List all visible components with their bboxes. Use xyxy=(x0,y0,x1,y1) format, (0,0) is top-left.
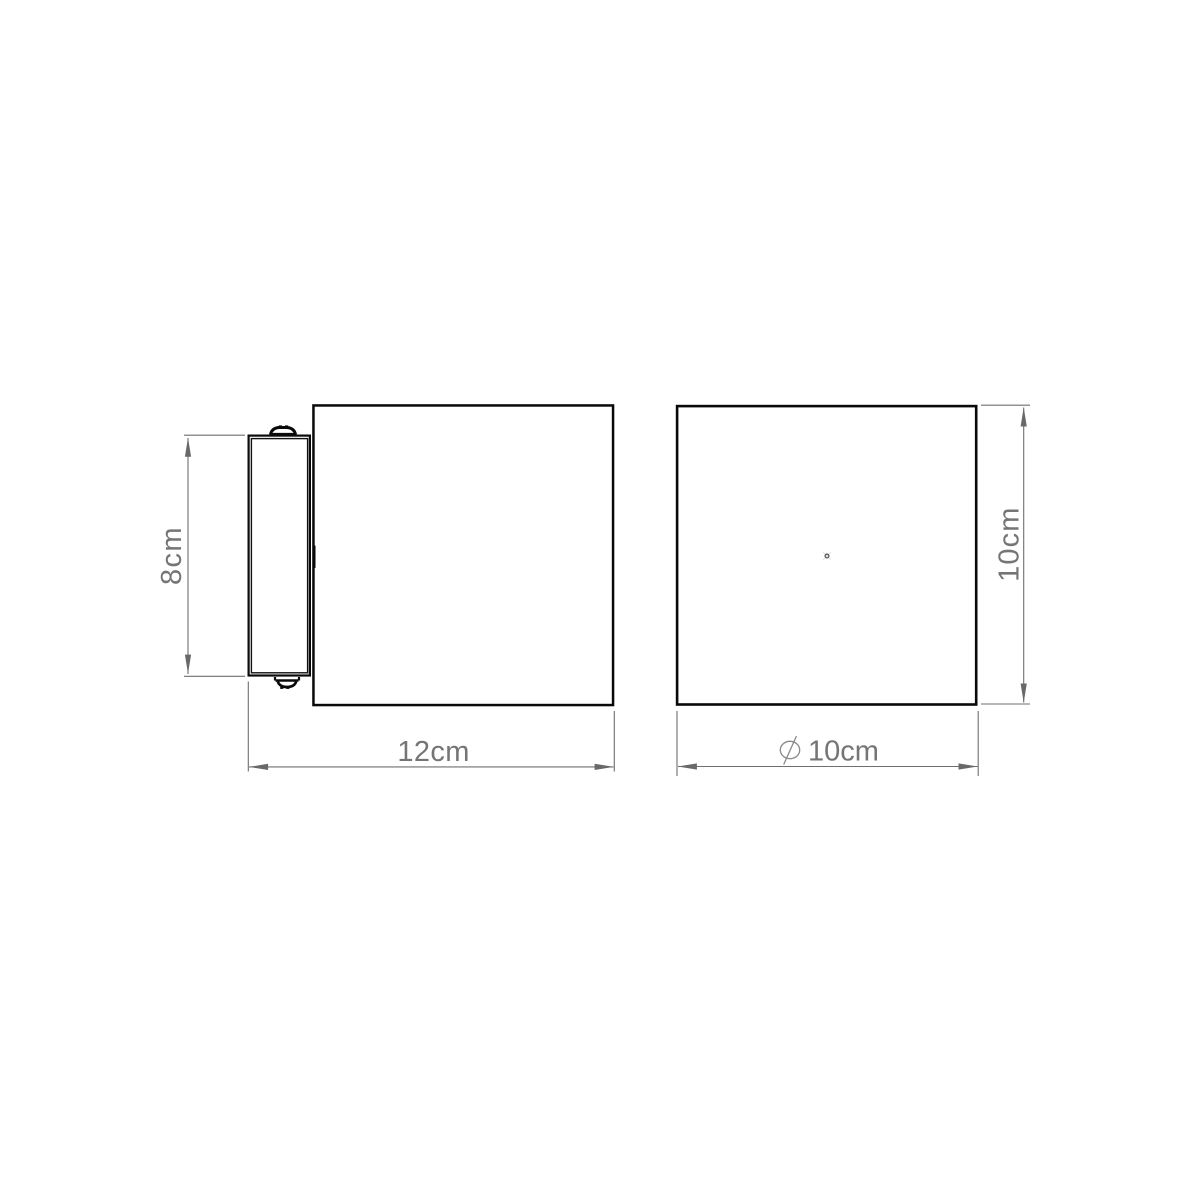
svg-text:10cm: 10cm xyxy=(994,507,1026,582)
svg-text:10cm: 10cm xyxy=(808,736,879,768)
svg-text:8cm: 8cm xyxy=(156,526,188,585)
svg-text:12cm: 12cm xyxy=(397,736,469,768)
